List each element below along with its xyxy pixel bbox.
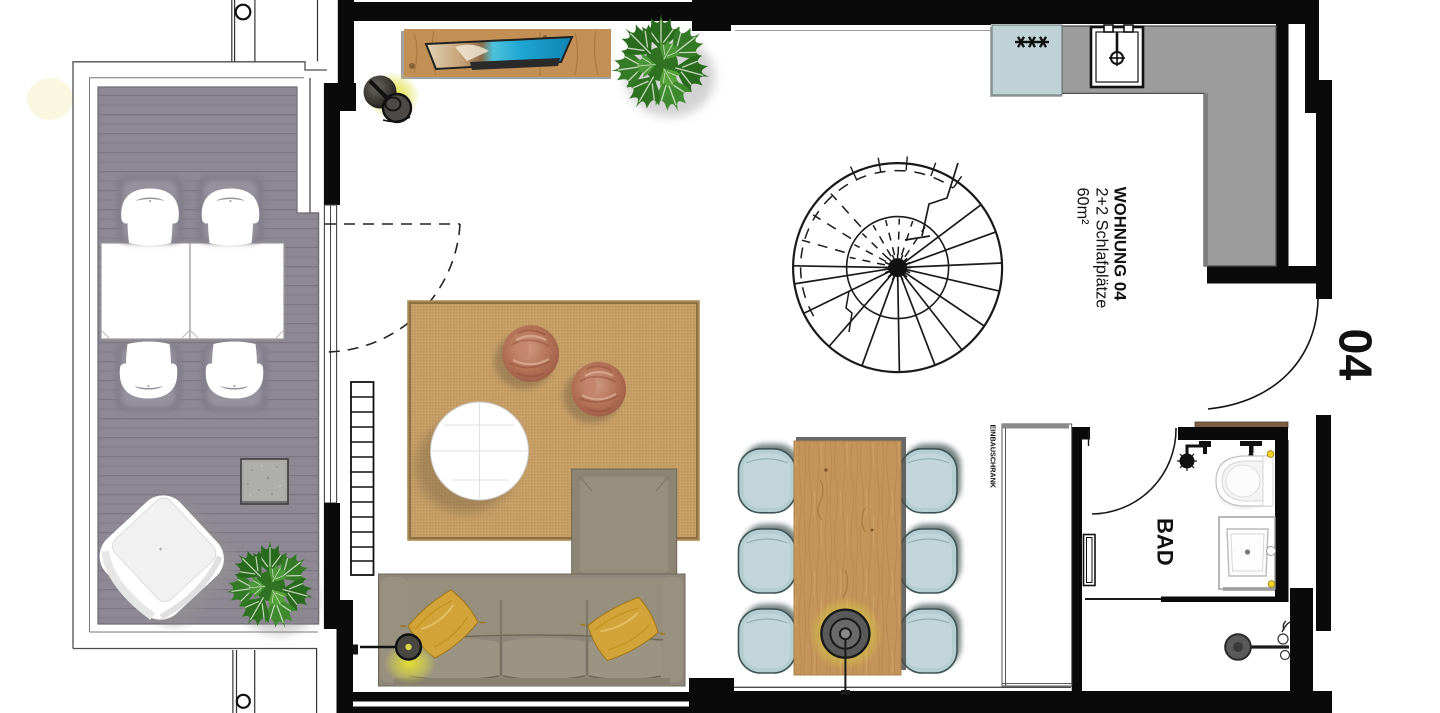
svg-text:EINBAUSCHRANK: EINBAUSCHRANK	[989, 425, 998, 489]
svg-text:BAD: BAD	[1153, 518, 1178, 566]
svg-text:WOHNUNG 04: WOHNUNG 04	[1111, 187, 1130, 301]
svg-text:60m²: 60m²	[1074, 188, 1092, 226]
svg-text:2+2 Schlafplätze: 2+2 Schlafplätze	[1093, 188, 1111, 309]
svg-text:04: 04	[1330, 329, 1382, 381]
